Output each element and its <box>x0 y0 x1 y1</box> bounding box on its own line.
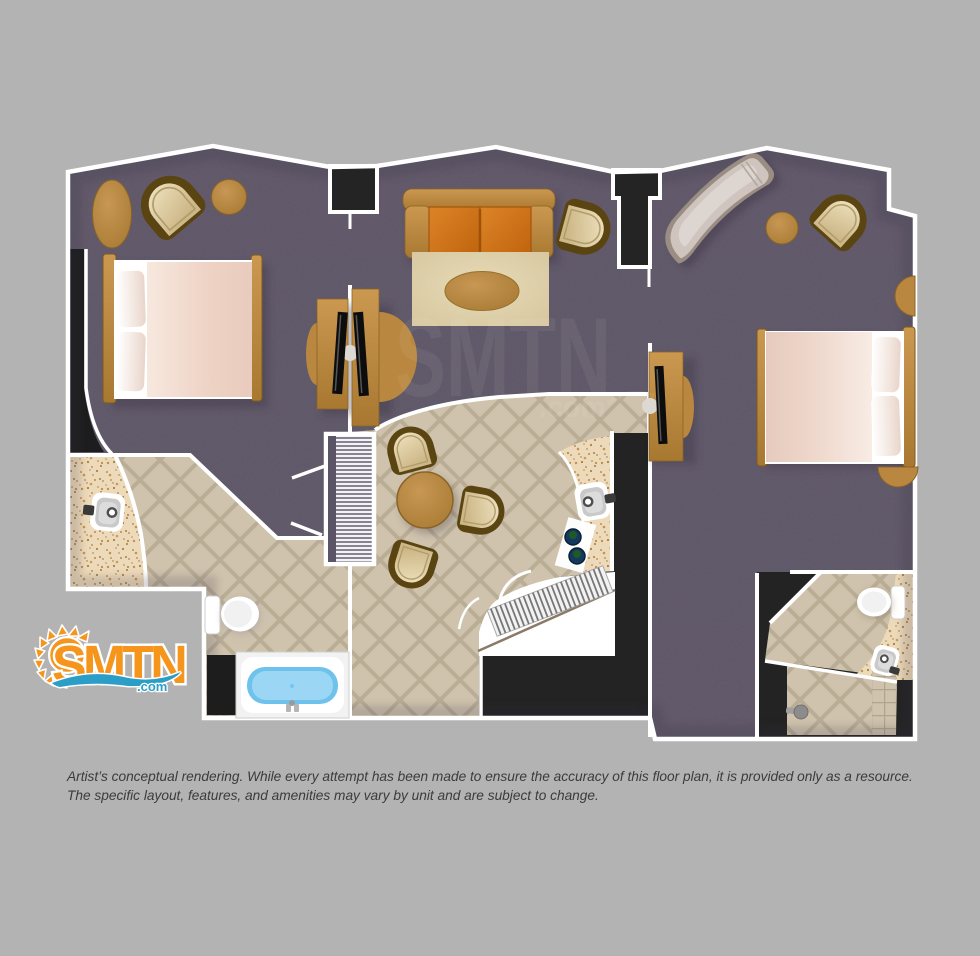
svg-text:Artist’s conceptual rendering.: Artist’s conceptual rendering. While eve… <box>66 769 913 784</box>
svg-text:.com: .com <box>539 391 606 424</box>
svg-text:The specific layout, features,: The specific layout, features, and ameni… <box>67 788 599 803</box>
svg-text:.com: .com <box>137 679 167 694</box>
